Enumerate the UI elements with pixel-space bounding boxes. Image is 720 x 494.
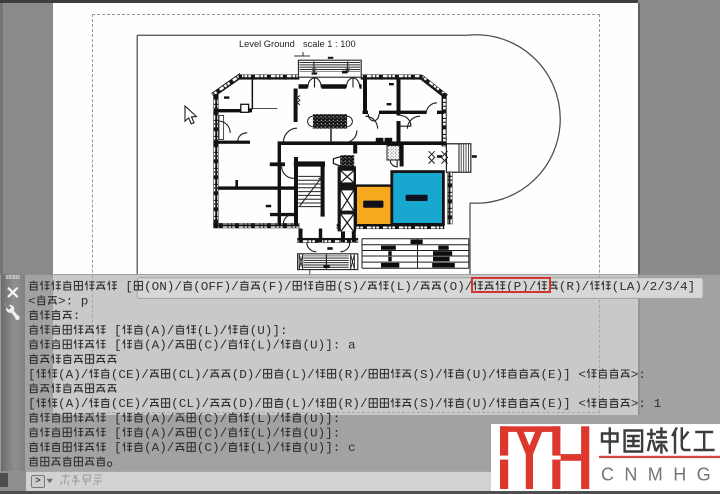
- svg-text:>:: >:: [631, 369, 646, 382]
- svg-text:[: [: [106, 325, 121, 338]
- svg-text:(C)/: (C)/: [197, 340, 227, 353]
- svg-text:(L)/: (L)/: [389, 281, 419, 294]
- svg-text:(D)/: (D)/: [232, 398, 262, 411]
- svg-text:(A)/: (A)/: [144, 340, 174, 353]
- svg-text:(E)] <: (E)] <: [540, 369, 586, 382]
- svg-text:[: [: [28, 369, 36, 382]
- svg-text:(C)/: (C)/: [197, 413, 227, 426]
- svg-text:(A)/: (A)/: [144, 325, 174, 338]
- svg-text:[: [: [106, 442, 121, 455]
- svg-text:(L)/: (L)/: [250, 428, 280, 441]
- svg-text:(R)/: (R)/: [337, 398, 367, 411]
- svg-text:(U)]:: (U)]:: [302, 413, 340, 426]
- svg-text:(U)/: (U)/: [465, 398, 495, 411]
- svg-text:(S)/: (S)/: [412, 369, 442, 382]
- svg-text:(E)] <: (E)] <: [540, 398, 586, 411]
- svg-text:(OFF)/: (OFF)/: [193, 281, 239, 294]
- svg-text:>: 1: >: 1: [631, 398, 661, 411]
- svg-text:(U)]:: (U)]:: [302, 428, 340, 441]
- svg-text:(A)/: (A)/: [144, 442, 174, 455]
- svg-text:(L)/: (L)/: [284, 398, 314, 411]
- svg-text:(A)/: (A)/: [144, 413, 174, 426]
- svg-text:(U)]:: (U)]:: [250, 325, 288, 338]
- svg-text:(CE)/: (CE)/: [111, 398, 149, 411]
- svg-text:(U)]: c: (U)]: c: [302, 442, 355, 455]
- svg-text:(A)/: (A)/: [144, 428, 174, 441]
- svg-text:(C)/: (C)/: [197, 442, 227, 455]
- svg-text:(A)/: (A)/: [58, 369, 88, 382]
- svg-text:(S)/: (S)/: [412, 398, 442, 411]
- svg-text:(S)/: (S)/: [336, 281, 366, 294]
- svg-text:(ON)/: (ON)/: [144, 281, 182, 294]
- svg-text:(L)/: (L)/: [250, 442, 280, 455]
- svg-text::: :: [73, 310, 81, 323]
- svg-text:(R)/: (R)/: [337, 369, 367, 382]
- svg-text:(L)/: (L)/: [250, 413, 280, 426]
- svg-text:(O)/: (O)/: [442, 281, 472, 294]
- svg-text:[: [: [28, 398, 36, 411]
- svg-text:(A)/: (A)/: [58, 398, 88, 411]
- svg-text:[: [: [106, 428, 121, 441]
- svg-text:(CL)/: (CL)/: [171, 369, 209, 382]
- svg-text:(U)/: (U)/: [465, 369, 495, 382]
- svg-text:[: [: [106, 340, 121, 353]
- svg-text:(L)/: (L)/: [197, 325, 227, 338]
- svg-text:[: [: [118, 281, 133, 294]
- svg-text:<: <: [28, 296, 36, 309]
- svg-text:(U)]: a: (U)]: a: [302, 340, 355, 353]
- svg-text:(CL)/: (CL)/: [171, 398, 209, 411]
- svg-text:(CE)/: (CE)/: [111, 369, 149, 382]
- svg-text:CNMHG: CNMHG: [601, 465, 720, 485]
- svg-text:(F)/: (F)/: [261, 281, 291, 294]
- svg-text:(D)/: (D)/: [232, 369, 262, 382]
- svg-text:(LA)/2/3/4]: (LA)/2/3/4]: [612, 281, 696, 294]
- svg-text:>: p: >: p: [58, 296, 88, 309]
- svg-text:(C)/: (C)/: [197, 428, 227, 441]
- svg-text:(L)/: (L)/: [284, 369, 314, 382]
- svg-text:(R)/: (R)/: [559, 281, 589, 294]
- svg-text:(L)/: (L)/: [250, 340, 280, 353]
- svg-text:[: [: [106, 413, 121, 426]
